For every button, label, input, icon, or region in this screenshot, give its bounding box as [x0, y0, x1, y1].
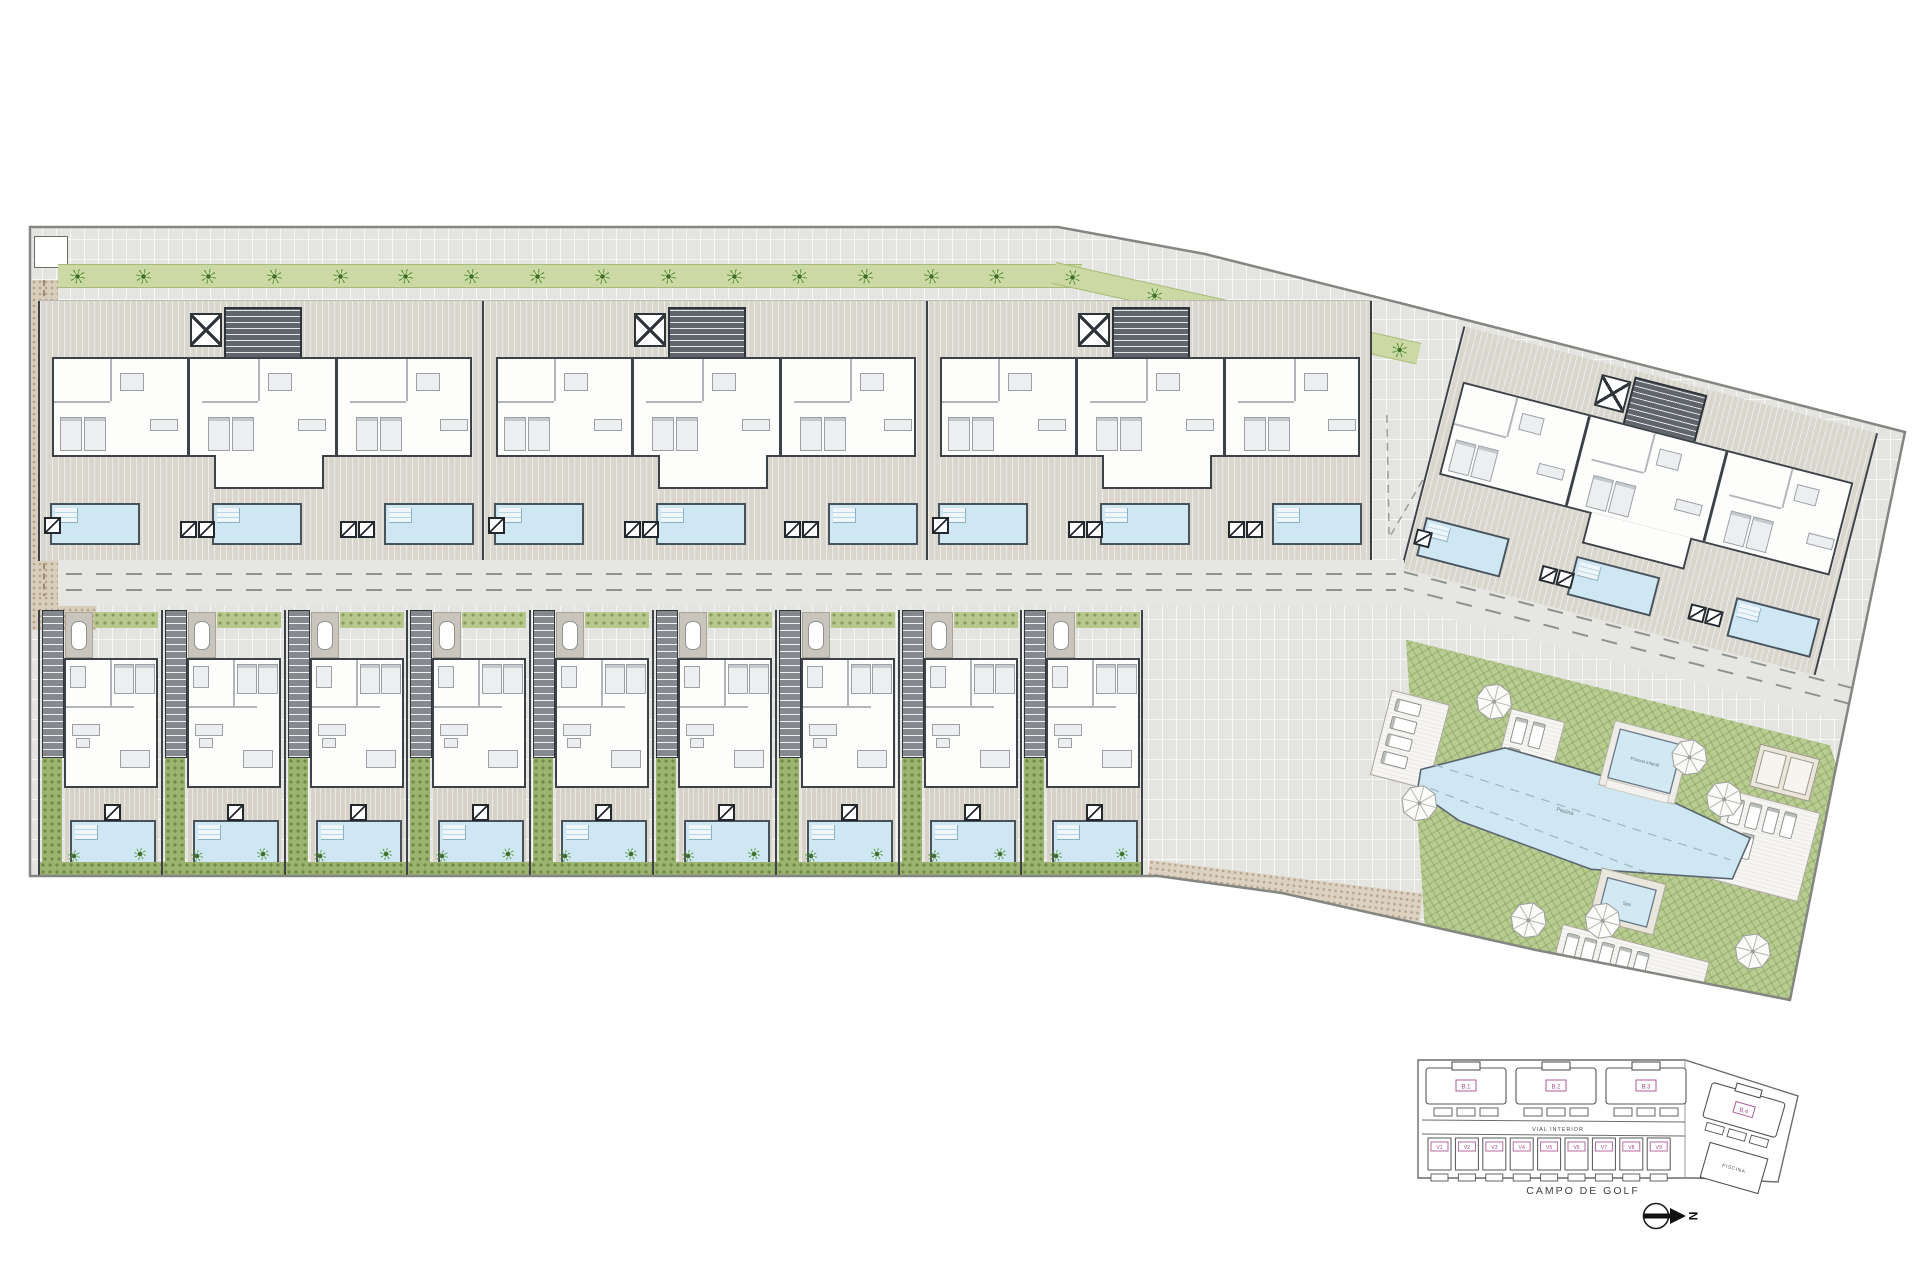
villa-stair [42, 610, 64, 758]
bath-icon [193, 666, 209, 688]
block-pool [50, 503, 140, 545]
keyplan-villa-label: V5 [1546, 1145, 1552, 1151]
villa-hedge-column [165, 758, 185, 874]
inner-wall [1506, 397, 1518, 437]
block-pool [1567, 556, 1661, 617]
bathtub-icon [808, 621, 824, 650]
villa-hedge-column [779, 758, 799, 874]
villa [529, 610, 652, 876]
pool-steps [689, 825, 712, 840]
inner-wall [66, 706, 134, 708]
shower-box [964, 804, 981, 821]
inner-wall [554, 359, 556, 401]
table-icon [416, 373, 440, 391]
shower-box [841, 804, 858, 821]
inner-wall [1090, 401, 1146, 403]
table-icon [120, 373, 144, 391]
block-extension [658, 455, 768, 489]
hedge-row-top [58, 264, 1082, 288]
bed-icon [380, 417, 402, 451]
sofa-icon [1054, 724, 1082, 736]
villa-stair [165, 610, 187, 758]
villa-hedge-bottom [900, 862, 1021, 875]
villa [898, 610, 1021, 876]
sofa-icon [686, 724, 714, 736]
keyplan-villas: V1V2V3V4V5V6V7V8V9 [1428, 1138, 1670, 1181]
dining-table-icon [734, 750, 764, 768]
bed-icon [652, 417, 674, 451]
bathtub-icon [1053, 621, 1069, 650]
block-pool [384, 503, 474, 545]
bed-icon [60, 417, 82, 451]
villa-hedge-bottom [408, 862, 529, 875]
inner-wall [110, 359, 112, 401]
block-pool [828, 503, 918, 545]
bathtub-icon [562, 621, 578, 650]
bed-icon [824, 417, 846, 451]
inner-wall [434, 706, 502, 708]
villa-hedge-bottom [40, 862, 161, 875]
keyplan-villa-label: V6 [1573, 1145, 1579, 1151]
sofa-icon [1038, 419, 1066, 431]
inner-wall [478, 660, 480, 706]
sofa-icon [884, 419, 912, 431]
palm-icon [1899, 413, 1917, 431]
sofa-icon [1674, 498, 1703, 516]
keyplan-villa-pool [1650, 1174, 1667, 1181]
table-icon [1008, 373, 1032, 391]
villa-entry [556, 612, 584, 658]
inner-wall [1048, 706, 1116, 708]
villa-stair [288, 610, 310, 758]
tech-box [1068, 521, 1085, 538]
block-pool [1272, 503, 1362, 545]
sofa-icon [72, 724, 100, 736]
bathtub-icon [685, 621, 701, 650]
tech-box [340, 521, 357, 538]
bed-icon [974, 664, 994, 694]
inner-wall [1146, 359, 1148, 401]
tech-box [1086, 521, 1103, 538]
villa-hedge-column [656, 758, 676, 874]
inner-wall [847, 660, 849, 706]
villa-pool [193, 820, 279, 868]
bed-icon [528, 417, 550, 451]
table-icon [690, 738, 704, 748]
villa-building [555, 658, 649, 788]
villa-pool [684, 820, 770, 868]
keyplan-golf-label: CAMPO DE GOLF [1526, 1185, 1640, 1197]
villas-row [38, 610, 1143, 876]
sofa-icon [150, 419, 178, 431]
inner-wall [1092, 660, 1094, 706]
table-icon [322, 738, 336, 748]
palm-icon [748, 848, 760, 860]
keyplan-block-pool [1547, 1108, 1565, 1116]
pool-steps [833, 508, 856, 523]
palm-icon [1584, 332, 1602, 350]
inner-wall [998, 359, 1000, 401]
keyplan-block-label: B.3 [1641, 1085, 1651, 1091]
bed-icon [232, 417, 254, 451]
bed-icon [84, 417, 106, 451]
villa-hedge-top [340, 612, 404, 628]
tech-box [1704, 608, 1724, 628]
unit-divider [1223, 359, 1226, 455]
inner-wall [356, 660, 358, 706]
keyplan-villa-label: V8 [1628, 1145, 1634, 1151]
villa-entry [802, 612, 830, 658]
villa [652, 610, 775, 876]
villa-stair [410, 610, 432, 758]
inner-wall [350, 401, 406, 403]
villa-building [64, 658, 158, 788]
sofa-icon [440, 724, 468, 736]
bed-icon [208, 417, 230, 451]
bed-icon [258, 664, 278, 694]
keyplan-villa-label: V1 [1436, 1145, 1442, 1151]
shower-box [1086, 804, 1103, 821]
pool-steps [1736, 603, 1761, 622]
bathtub-icon [439, 621, 455, 650]
villa [1020, 610, 1143, 876]
villa-stair [902, 610, 924, 758]
villa-pool [930, 820, 1016, 868]
stair-core [1112, 307, 1190, 361]
keyplan-block-pool [1480, 1108, 1498, 1116]
road-dash-line [66, 589, 1396, 591]
villa-hedge-top [831, 612, 895, 628]
palm-icon [70, 269, 85, 284]
palm-icon [314, 850, 326, 862]
tech-box [1228, 521, 1245, 538]
villa-stair [1024, 610, 1046, 758]
villa-hedge-bottom [777, 862, 898, 875]
apartment-block [38, 301, 482, 561]
tech-box [180, 521, 197, 538]
keyplan-block-label: B.1 [1461, 1085, 1471, 1091]
tech-box [624, 521, 641, 538]
tech-box [802, 521, 819, 538]
unit-divider [187, 359, 190, 455]
bed-icon [676, 417, 698, 451]
shower-box [718, 804, 735, 821]
block-pool [212, 503, 302, 545]
keyplan-villa-pool [1458, 1174, 1475, 1181]
pool-steps [1057, 825, 1080, 840]
keyplan-blocks: B.1B.2B.3 [1426, 1062, 1686, 1116]
keyplan-villa-label: V9 [1656, 1145, 1662, 1151]
inner-wall [1644, 433, 1656, 473]
inner-wall [724, 660, 726, 706]
dining-table-icon [611, 750, 641, 768]
bath-icon [1052, 666, 1068, 688]
villa-hedge-bottom [531, 862, 652, 875]
villa-hedge-column [902, 758, 922, 874]
palm-icon [1521, 316, 1539, 334]
pool-steps [1105, 508, 1128, 523]
inner-wall [942, 401, 998, 403]
tech-box [1246, 521, 1263, 538]
palm-icon [267, 269, 282, 284]
villa-pool [438, 820, 524, 868]
palm-icon [191, 850, 203, 862]
table-icon [567, 738, 581, 748]
apartment-blocks-row [38, 300, 1372, 561]
inner-wall [258, 359, 260, 401]
inner-wall [202, 401, 258, 403]
pool-steps [321, 825, 344, 840]
bed-icon [360, 664, 380, 694]
keyplan-villa-pool [1431, 1174, 1448, 1181]
dining-table-icon [1102, 750, 1132, 768]
palm-icon [1836, 397, 1854, 415]
palm-icon [201, 269, 216, 284]
palm-icon [928, 850, 940, 862]
palm-icon [464, 269, 479, 284]
elevator-icon [1078, 313, 1110, 347]
villa-building [678, 658, 772, 788]
bed-icon [114, 664, 134, 694]
villa-hedge-bottom [286, 862, 407, 875]
villa-entry [1047, 612, 1075, 658]
villa-entry [188, 612, 216, 658]
table-icon [564, 373, 588, 391]
bed-icon [995, 664, 1015, 694]
bed-icon [1268, 417, 1290, 451]
table-icon [1058, 738, 1072, 748]
table-icon [1793, 484, 1820, 506]
bed-icon [135, 664, 155, 694]
keyplan-villa-pool [1541, 1174, 1558, 1181]
bath-icon [438, 666, 454, 688]
sofa-icon [195, 724, 223, 736]
villa-hedge-column [1024, 758, 1044, 874]
villa-hedge-column [42, 758, 62, 874]
dining-table-icon [857, 750, 887, 768]
table-icon [1304, 373, 1328, 391]
inner-wall [680, 706, 748, 708]
villa-entry [65, 612, 93, 658]
pool-steps [1277, 508, 1300, 523]
pool-steps [75, 825, 98, 840]
dining-table-icon [120, 750, 150, 768]
block-pool [656, 503, 746, 545]
keyplan-block-pool [1570, 1108, 1588, 1116]
inner-wall [803, 706, 871, 708]
villa-hedge-top [708, 612, 772, 628]
villa-hedge-column [533, 758, 553, 874]
palm-icon [858, 269, 873, 284]
bed-icon [749, 664, 769, 694]
keyplan-block-label: B.2 [1551, 1085, 1561, 1091]
villa-hedge-top [954, 612, 1018, 628]
stair-core [668, 307, 746, 361]
dining-table-icon [980, 750, 1010, 768]
block-extension [214, 455, 324, 489]
block-building [940, 357, 1360, 457]
villa-entry [433, 612, 461, 658]
bathtub-icon [317, 621, 333, 650]
road-main [58, 560, 1404, 606]
block-building [52, 357, 472, 457]
bed-icon [1096, 417, 1118, 451]
bed-icon [948, 417, 970, 451]
shower-box [104, 804, 121, 821]
table-icon [936, 738, 950, 748]
palm-icon [333, 269, 348, 284]
tech-box [488, 517, 505, 534]
palm-icon [136, 269, 151, 284]
palm-icon [1773, 381, 1791, 399]
villa-pool [316, 820, 402, 868]
keyplan-block-pool [1637, 1108, 1655, 1116]
keyplan-block-pool [1457, 1108, 1475, 1116]
site-plan-drawing: Piscina infantil Piscina Spa [0, 0, 1920, 1280]
inner-wall [601, 660, 603, 706]
pool-steps [661, 508, 684, 523]
villa [775, 610, 898, 876]
keyplan-villa-label: V2 [1464, 1145, 1470, 1151]
palm-icon [661, 269, 676, 284]
inner-wall [110, 660, 112, 706]
villa [406, 610, 529, 876]
pool-steps [935, 825, 958, 840]
bed-icon [605, 664, 625, 694]
villa-entry [925, 612, 953, 658]
tech-box [642, 521, 659, 538]
sofa-icon [742, 419, 770, 431]
table-icon [1156, 373, 1180, 391]
bed-icon [800, 417, 822, 451]
pool-steps [566, 825, 589, 840]
inner-wall [54, 401, 110, 403]
bath-icon [70, 666, 86, 688]
shower-box [595, 804, 612, 821]
table-icon [712, 373, 736, 391]
villa [284, 610, 407, 876]
inner-wall [926, 706, 994, 708]
bed-icon [237, 664, 257, 694]
bed-icon [482, 664, 502, 694]
palm-icon [595, 269, 610, 284]
keyplan-villa-label: V7 [1601, 1145, 1607, 1151]
palm-icon [871, 848, 883, 860]
bed-icon [972, 417, 994, 451]
palm-icon [924, 269, 939, 284]
apartment-block [926, 301, 1372, 561]
bathtub-icon [931, 621, 947, 650]
pool-steps [812, 825, 835, 840]
palm-icon [398, 269, 413, 284]
villa-hedge-column [410, 758, 430, 874]
apartment-block [482, 301, 926, 561]
villa-hedge-bottom [1022, 862, 1141, 875]
pool-steps [198, 825, 221, 840]
unit-divider [1703, 452, 1729, 542]
bathtub-icon [194, 621, 210, 650]
villa [38, 610, 161, 876]
villa-stair [533, 610, 555, 758]
keyplan-villa-pool [1486, 1174, 1503, 1181]
sofa-icon [1186, 419, 1214, 431]
villa-hedge-top [462, 612, 526, 628]
block-pool [1100, 503, 1190, 545]
villa-pool [807, 820, 893, 868]
inner-wall [406, 359, 408, 401]
pool-steps [217, 508, 240, 523]
stair-core [224, 307, 302, 361]
bathtub-icon [71, 621, 87, 650]
block-pool [1416, 517, 1510, 578]
block-pool [1726, 597, 1820, 658]
sofa-icon [594, 419, 622, 431]
dining-table-icon [488, 750, 518, 768]
sofa-icon [563, 724, 591, 736]
sofa-icon [298, 419, 326, 431]
bed-icon [504, 417, 526, 451]
keyplan-villa-pool [1568, 1174, 1585, 1181]
sofa-icon [932, 724, 960, 736]
palm-icon [257, 848, 269, 860]
palm-icon [989, 269, 1004, 284]
inner-wall [850, 359, 852, 401]
keyplan-villa-pool [1595, 1174, 1612, 1181]
villa-building [187, 658, 281, 788]
table-icon [813, 738, 827, 748]
palm-icon [68, 850, 80, 862]
bath-icon [807, 666, 823, 688]
palm-icon [380, 848, 392, 860]
palm-icon [792, 269, 807, 284]
north-arrow: N [1644, 1204, 1701, 1229]
inner-wall [1454, 423, 1507, 438]
bath-icon [930, 666, 946, 688]
tech-box [784, 521, 801, 538]
villa-entry [311, 612, 339, 658]
elevator-icon [190, 313, 222, 347]
tech-box [358, 521, 375, 538]
inner-wall [312, 706, 380, 708]
bed-icon [626, 664, 646, 694]
north-label: N [1686, 1212, 1700, 1221]
villa-entry [679, 612, 707, 658]
shower-box [472, 804, 489, 821]
keyplan-block-pool [1434, 1108, 1452, 1116]
inner-wall [189, 706, 257, 708]
keyplan-block-pool [1660, 1108, 1678, 1116]
villa-hedge-top [1076, 612, 1140, 628]
block-pool [938, 503, 1028, 545]
keyplan-block-pool [1524, 1108, 1542, 1116]
bed-icon [728, 664, 748, 694]
pool-steps [389, 508, 412, 523]
inner-wall [1591, 459, 1644, 474]
tech-box [44, 517, 61, 534]
table-icon [1656, 448, 1683, 470]
table-icon [268, 373, 292, 391]
inner-wall [557, 706, 625, 708]
palm-icon [994, 848, 1006, 860]
keyplan-road-label: VIAL INTERIOR [1532, 1127, 1584, 1133]
bed-icon [872, 664, 892, 694]
palm-icon [1647, 348, 1665, 366]
table-icon [199, 738, 213, 748]
villa-pool [561, 820, 647, 868]
villa-hedge-top [217, 612, 281, 628]
villa-hedge-bottom [654, 862, 775, 875]
table-icon [76, 738, 90, 748]
